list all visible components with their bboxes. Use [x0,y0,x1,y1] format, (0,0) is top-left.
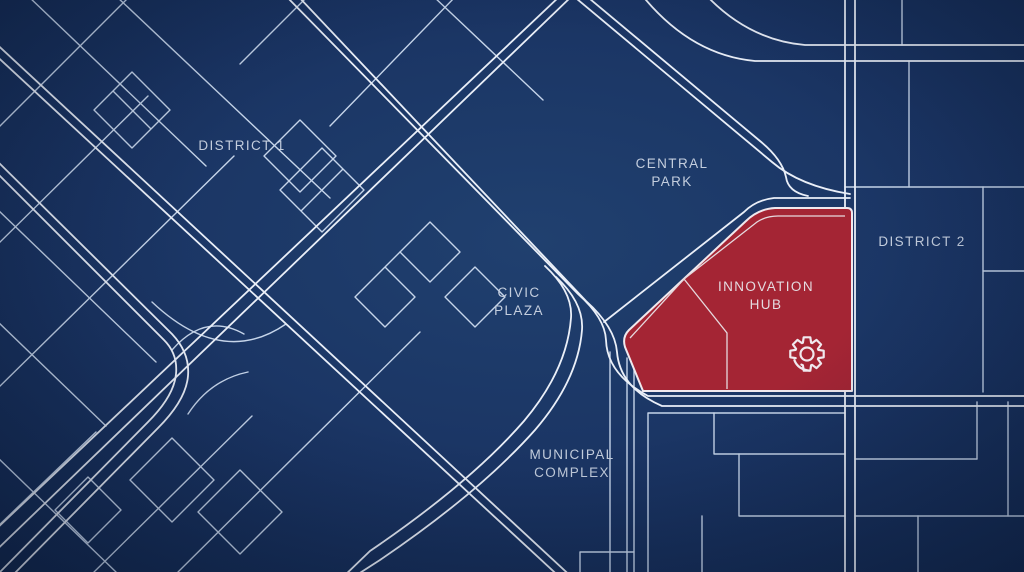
label-municipal-complex-line2: COMPLEX [534,465,610,480]
label-civic-plaza-line2: PLAZA [494,303,544,318]
label-civic-plaza-line1: CIVIC [497,285,540,300]
blueprint-city-map: DISTRICT 1 CENTRAL PARK CIVIC PLAZA INNO… [0,0,1024,572]
label-district-1: DISTRICT 1 [198,138,285,153]
city-map-canvas: DISTRICT 1 CENTRAL PARK CIVIC PLAZA INNO… [0,0,1024,572]
label-innovation-hub-line2: HUB [750,297,783,312]
label-central-park-line2: PARK [651,174,692,189]
label-central-park-line1: CENTRAL [636,156,709,171]
label-district-2: DISTRICT 2 [878,234,965,249]
label-municipal-complex-line1: MUNICIPAL [529,447,614,462]
label-innovation-hub-line1: INNOVATION [718,279,814,294]
